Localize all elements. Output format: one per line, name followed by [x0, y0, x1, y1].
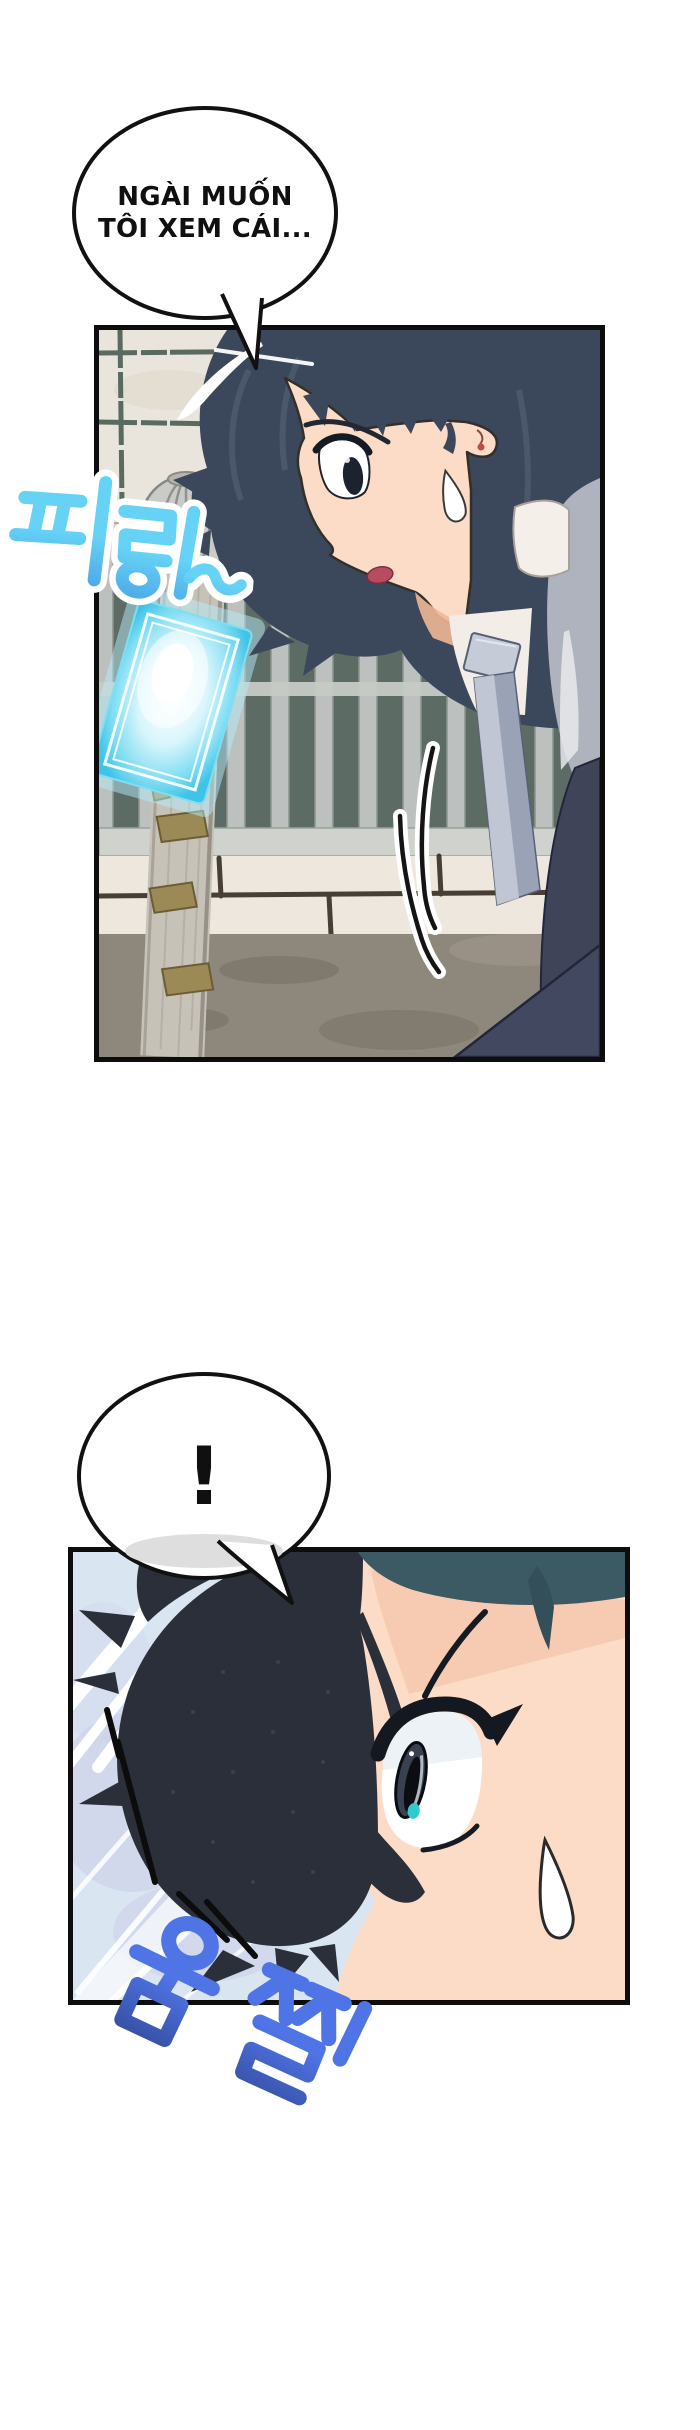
- speech-bubble-2-tail: [208, 1535, 304, 1615]
- speech-bubble-1: NGÀI MUỐN TÔI XEM CÁI...: [72, 106, 338, 320]
- comic-page: NGÀI MUỐN TÔI XEM CÁI... 피링~: [0, 0, 700, 2430]
- speech-bubble-1-tail: [206, 288, 276, 376]
- sfx-flinch: 움찔: [112, 1916, 376, 2112]
- panel-1-artwork: [99, 330, 600, 1057]
- bubble1-line1: NGÀI MUỐN: [117, 181, 293, 214]
- bubble1-line2: TÔI XEM CÁI...: [98, 213, 312, 246]
- sfx-flinch-glyphs: [112, 1916, 368, 2111]
- bubble2-text: !: [186, 1430, 222, 1523]
- earring: [478, 444, 485, 451]
- sfx-ring: 피링~: [0, 457, 261, 626]
- collar: [513, 501, 569, 577]
- panel-1: [94, 325, 605, 1062]
- sfx-ring-glyphs: [10, 471, 250, 605]
